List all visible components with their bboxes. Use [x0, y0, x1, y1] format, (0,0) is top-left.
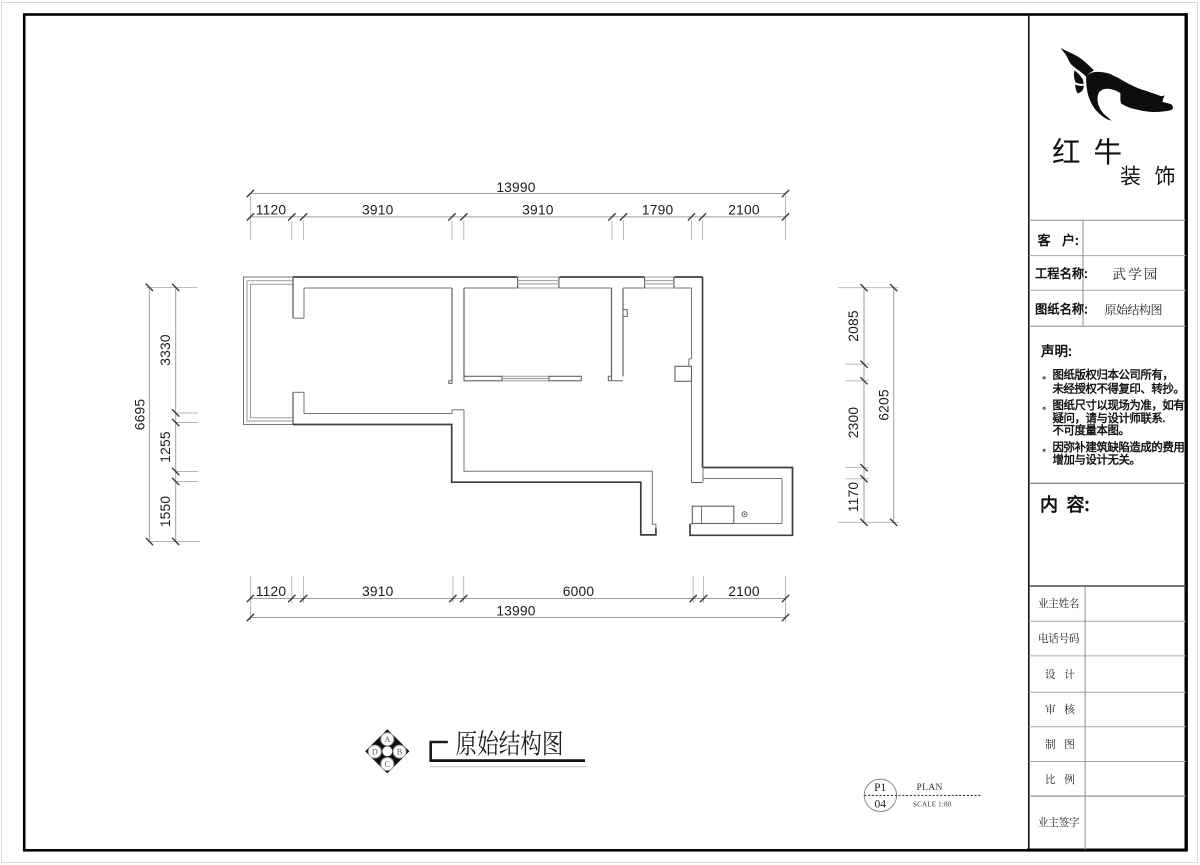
svg-text:3330: 3330	[158, 334, 173, 366]
svg-text:。: 。	[1043, 400, 1051, 412]
svg-text:原始结构图: 原始结构图	[456, 723, 564, 762]
svg-text:6695: 6695	[133, 399, 148, 431]
svg-text:声明:: 声明:	[1040, 340, 1072, 360]
svg-text:比 例: 比 例	[1045, 772, 1078, 787]
svg-text:未经授权不得复印、转抄。: 未经授权不得复印、转抄。	[1052, 380, 1185, 396]
svg-text:3910: 3910	[362, 203, 394, 218]
svg-text:业主姓名: 业主姓名	[1038, 596, 1079, 611]
svg-text:业主签字: 业主签字	[1038, 815, 1080, 830]
svg-text:PLAN: PLAN	[917, 782, 943, 793]
svg-text:电话号码: 电话号码	[1038, 631, 1080, 646]
svg-text:3910: 3910	[522, 203, 554, 218]
svg-text:审 核: 审 核	[1045, 702, 1078, 717]
svg-text:工程名称:: 工程名称:	[1035, 264, 1088, 282]
svg-text:6205: 6205	[876, 389, 891, 421]
svg-text:6000: 6000	[563, 584, 595, 599]
svg-text:1790: 1790	[642, 203, 674, 218]
svg-text:2300: 2300	[846, 407, 861, 439]
svg-text:1170: 1170	[846, 482, 861, 513]
svg-text:1255: 1255	[158, 431, 173, 463]
svg-text:增加与设计无关。: 增加与设计无关。	[1053, 452, 1141, 468]
svg-text:武学园: 武学园	[1113, 263, 1160, 283]
svg-text:。: 。	[1043, 442, 1051, 454]
svg-text:13990: 13990	[496, 603, 535, 618]
svg-text:C: C	[385, 760, 391, 769]
svg-text:1120: 1120	[256, 203, 287, 218]
svg-text:1550: 1550	[158, 496, 173, 528]
svg-text:图纸名称:: 图纸名称:	[1035, 300, 1088, 318]
svg-text:D: D	[372, 748, 378, 757]
svg-text:不可度量本图。: 不可度量本图。	[1053, 422, 1130, 438]
svg-text:1120: 1120	[256, 584, 287, 599]
svg-text:2100: 2100	[728, 203, 760, 218]
svg-text:。: 。	[1043, 370, 1051, 382]
svg-text:04: 04	[874, 799, 886, 811]
svg-text:2085: 2085	[846, 310, 861, 342]
svg-text:设 计: 设 计	[1045, 667, 1078, 682]
svg-text:2100: 2100	[728, 584, 760, 599]
svg-text:原始结构图: 原始结构图	[1105, 301, 1163, 318]
svg-text:13990: 13990	[496, 180, 535, 195]
svg-text:SCALE 1:80: SCALE 1:80	[913, 800, 952, 808]
svg-text:A: A	[384, 735, 390, 744]
svg-text:P1: P1	[874, 782, 886, 794]
svg-text:3910: 3910	[362, 584, 394, 599]
svg-text:B: B	[397, 748, 403, 757]
svg-text:制 图: 制 图	[1045, 737, 1078, 752]
